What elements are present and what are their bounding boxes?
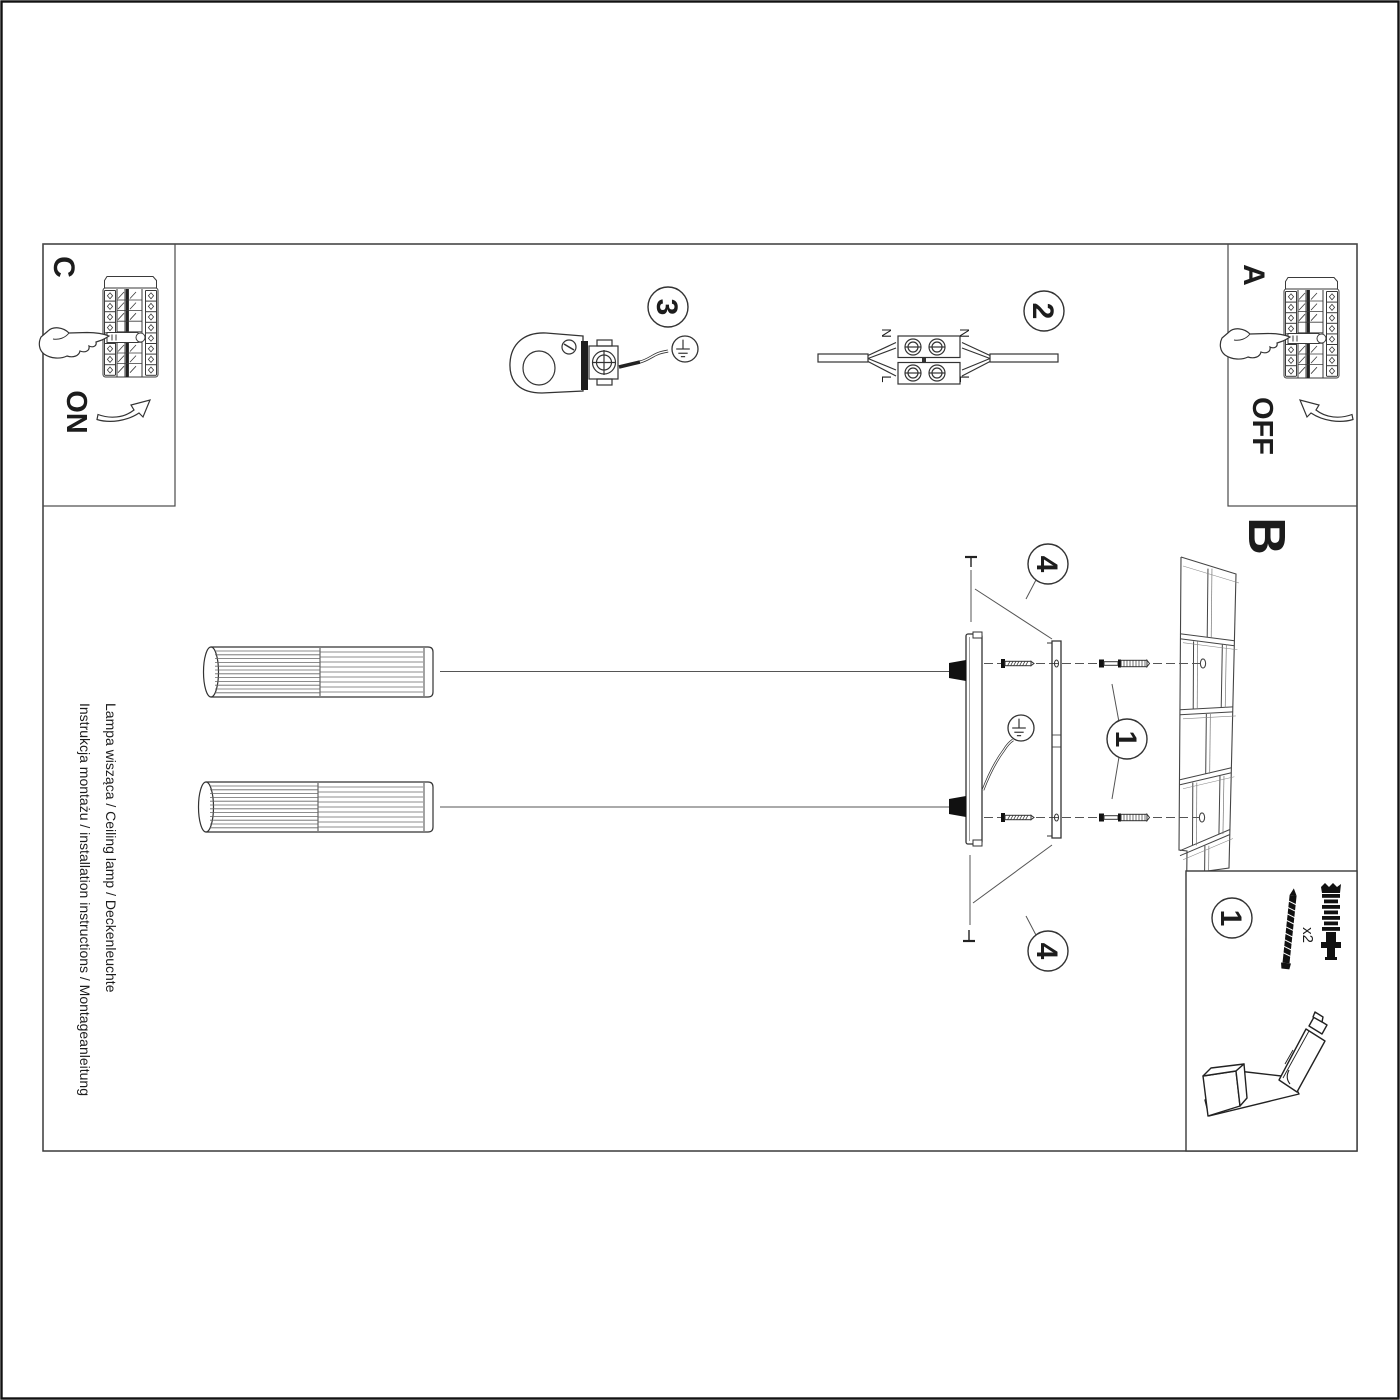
earth-screw-terminal bbox=[589, 340, 618, 385]
step-4-number: 4 bbox=[1030, 556, 1063, 573]
cable-gland-1 bbox=[949, 660, 966, 681]
mounting-screw-2 bbox=[1001, 813, 1034, 822]
canopy bbox=[949, 632, 982, 846]
wire-label-n-right: N bbox=[957, 328, 972, 337]
pendant-shade-2 bbox=[199, 782, 434, 832]
panel-a-label: A bbox=[1237, 264, 1270, 286]
canopy-earth-wire bbox=[983, 740, 1013, 790]
wall-anchor-2 bbox=[1099, 814, 1150, 822]
drill-hole bbox=[1200, 659, 1205, 668]
mounting-bracket bbox=[1047, 641, 1061, 838]
wire-label-l-right: L bbox=[957, 375, 972, 382]
switch-on-arrow-icon bbox=[97, 400, 150, 421]
wire-label-l-left: L bbox=[879, 375, 894, 382]
terminal-block-l bbox=[898, 363, 960, 385]
earth-wire bbox=[619, 362, 640, 367]
breaker-box-icon bbox=[1284, 278, 1339, 379]
wire-label-n-left: N bbox=[879, 328, 894, 337]
panel-a: A OFF bbox=[1220, 244, 1357, 506]
step-3-number: 3 bbox=[650, 299, 683, 316]
step-1-number: 1 bbox=[1109, 731, 1142, 748]
step-2-number: 2 bbox=[1026, 303, 1059, 320]
document-titles: Instrukcja montażu / installation instru… bbox=[77, 703, 119, 1096]
pendant-shade-1 bbox=[204, 647, 434, 697]
page-border bbox=[2, 2, 1399, 1399]
drill-hole bbox=[1199, 813, 1204, 822]
panel-c: C ON bbox=[39, 244, 175, 506]
pointing-hand-icon bbox=[39, 328, 109, 358]
step-4-number: 4 bbox=[1030, 943, 1063, 960]
panel-b-label: B bbox=[1237, 517, 1295, 555]
section-b-assembly: B bbox=[199, 517, 1296, 971]
panel-c-label: C bbox=[47, 256, 80, 278]
hardware-inset: 1 x2 bbox=[1186, 871, 1357, 1151]
inset-step-number: 1 bbox=[1214, 910, 1247, 927]
step-2-wiring: N N L L 2 bbox=[818, 291, 1064, 384]
breaker-box-icon bbox=[103, 277, 158, 378]
instruction-sheet: C ON A OFF 3 bbox=[0, 0, 1400, 1400]
lamp-cable bbox=[990, 354, 1058, 362]
switch-off-arrow-icon bbox=[1300, 400, 1353, 421]
title-line-1: Instrukcja montażu / installation instru… bbox=[77, 703, 93, 1096]
title-line-2: Lampa wisząca / Ceiling lamp / Deckenleu… bbox=[103, 703, 119, 993]
step-1-callout: 1 bbox=[1107, 684, 1147, 799]
quantity-label: x2 bbox=[1299, 927, 1316, 943]
on-label: ON bbox=[60, 390, 92, 434]
step-3-earth-terminal: 3 bbox=[510, 287, 698, 393]
off-label: OFF bbox=[1246, 397, 1278, 455]
supply-cable bbox=[818, 354, 868, 362]
cable-gland-2 bbox=[949, 796, 966, 817]
wall-anchor-1 bbox=[1099, 660, 1150, 668]
step-4-callout-bottom: 4 bbox=[963, 845, 1068, 971]
terminal-block-n bbox=[898, 336, 960, 358]
pointing-hand-icon bbox=[1220, 329, 1290, 359]
step-4-callout-top: 4 bbox=[965, 544, 1068, 639]
mounting-screw-1 bbox=[1001, 659, 1034, 668]
